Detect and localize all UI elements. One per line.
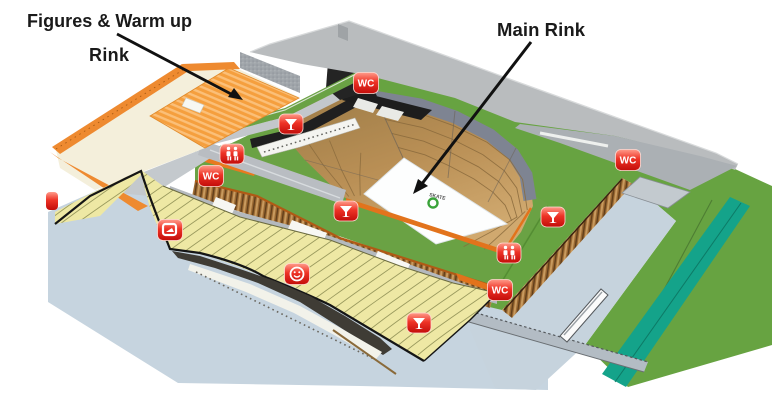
svg-text:Figures & Warm up: Figures & Warm up [27,11,192,31]
svg-text:WC: WC [358,79,375,90]
svg-text:Main Rink: Main Rink [497,19,586,40]
svg-text:WC: WC [492,286,509,297]
svg-text:WC: WC [203,172,220,183]
svg-text:Rink: Rink [89,45,130,65]
svg-text:WC: WC [620,156,637,167]
